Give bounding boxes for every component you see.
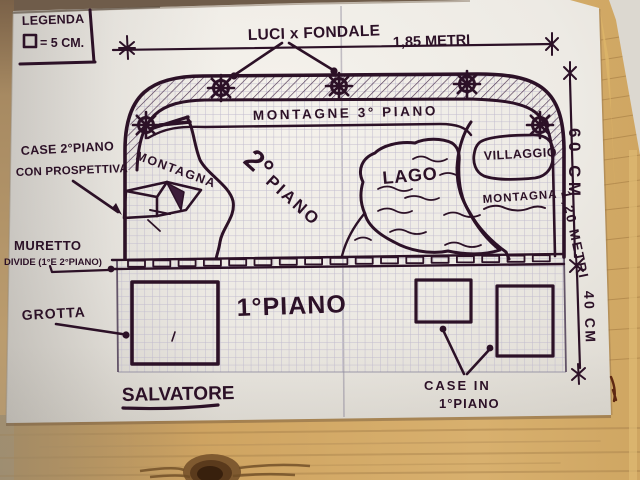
svg-text:1°PIANO: 1°PIANO xyxy=(236,290,347,322)
svg-text:DIVIDE (1°E 2°PIANO): DIVIDE (1°E 2°PIANO) xyxy=(4,257,102,268)
svg-text:MURETTO: MURETTO xyxy=(14,238,82,253)
svg-text:SALVATORE: SALVATORE xyxy=(122,383,235,406)
svg-text:CASE IN: CASE IN xyxy=(424,378,491,393)
svg-text:= 5 CM.: = 5 CM. xyxy=(40,36,84,50)
svg-text:LEGENDA: LEGENDA xyxy=(22,12,85,28)
svg-text:40 CM: 40 CM xyxy=(581,291,599,345)
svg-text:GROTTA: GROTTA xyxy=(21,304,86,323)
svg-text:1°PIANO: 1°PIANO xyxy=(439,396,500,411)
svg-text:1,85 METRI: 1,85 METRI xyxy=(393,32,471,51)
